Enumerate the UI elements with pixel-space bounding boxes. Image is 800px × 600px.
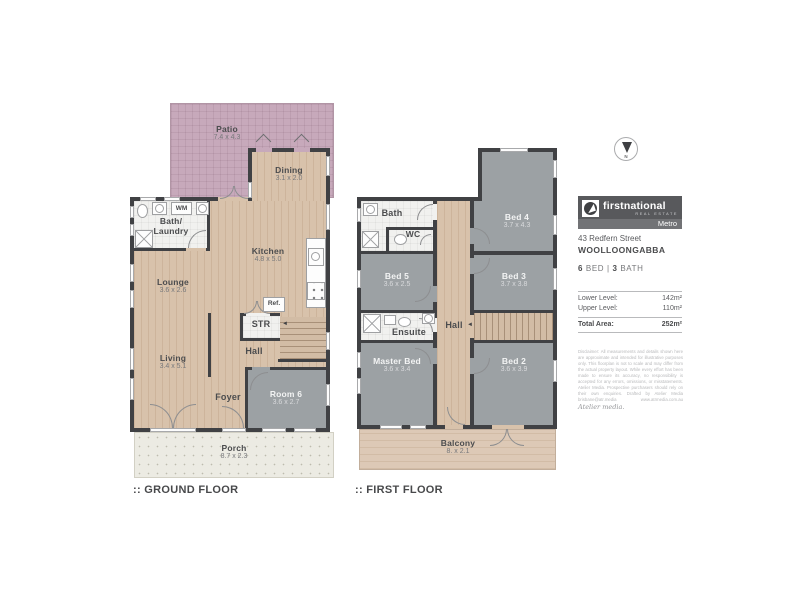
room-label-balcony: Balcony 8. x 2.1 (427, 438, 489, 457)
room-label-bed2: Bed 2 3.6 x 3.9 (482, 356, 546, 375)
area-label: Upper Level: (578, 305, 618, 312)
summary-divider: | (607, 264, 610, 273)
room-label-bed3: Bed 3 3.7 x 3.8 (482, 271, 546, 290)
window (553, 215, 557, 235)
area-row-total: Total Area: 252m² (578, 321, 682, 328)
room-dims: 8. x 2.1 (427, 448, 489, 457)
storage-label: STR (244, 319, 278, 330)
window (553, 360, 557, 382)
shower-icon (363, 314, 381, 333)
room-dims: 3.6 x 2.6 (143, 287, 203, 296)
room-name: Lounge (143, 277, 203, 287)
wall-segment (361, 251, 437, 254)
room-name: Laundry (136, 226, 206, 236)
room-dims: 4.8 x 5.0 (238, 256, 298, 265)
divider-line (578, 332, 682, 333)
room-name: Porch (202, 443, 266, 453)
bed4-area (482, 152, 553, 201)
room-label-room6: Room 6 3.6 x 2.7 (250, 389, 322, 408)
room-label-lounge: Lounge 3.6 x 2.6 (143, 277, 203, 296)
door-opening (252, 367, 270, 370)
area-value: 110m² (663, 305, 682, 312)
window (130, 206, 134, 218)
stair-direction-arrow: ◄ (282, 321, 288, 327)
window (130, 290, 134, 308)
room-label-bed5: Bed 5 3.6 x 2.5 (369, 271, 425, 290)
room-label-living: Living 3.4 x 5.1 (143, 353, 203, 372)
room-name: Living (143, 353, 203, 363)
window (357, 352, 361, 368)
room-label-dining: Dining 3.1 x 2.0 (261, 165, 317, 184)
window (553, 160, 557, 178)
wall-segment (208, 313, 211, 377)
area-row-upper: Upper Level: 110m² (578, 305, 682, 312)
room-name: Dining (261, 165, 317, 175)
room-name: Bed 3 (482, 271, 546, 281)
door-opening (186, 248, 206, 251)
window (553, 268, 557, 290)
area-value: 142m² (662, 295, 682, 302)
wc-label: WC (398, 229, 428, 239)
window (262, 428, 286, 432)
room-label-patio: Patio 7.4 x 4.3 (197, 124, 257, 143)
door-opening (433, 204, 437, 220)
address-line2: WOOLLOONGABBA (578, 245, 665, 255)
bath-label: Bath (374, 208, 410, 219)
room-dims: 8.7 x 2.3 (202, 453, 266, 462)
window (326, 332, 330, 350)
window (357, 270, 361, 288)
ground-floor-caption: :: GROUND FLOOR (133, 484, 238, 496)
room-name: Master Bed (363, 356, 431, 366)
baths-label: BATH (620, 264, 643, 273)
room-label-porch: Porch 8.7 x 2.3 (202, 443, 266, 462)
compass-needle-icon (622, 142, 632, 153)
sink-basin-icon (155, 204, 164, 213)
wall-segment (278, 359, 326, 362)
stove-icon (307, 282, 325, 300)
fridge-label: Ref. (263, 301, 285, 308)
door-opening (433, 286, 437, 302)
area-label: Lower Level: (578, 295, 618, 302)
room-name: Balcony (427, 438, 489, 448)
total-area-value: 252m² (662, 321, 682, 328)
room-name: Bed 4 (485, 212, 549, 222)
hall-floor-first (437, 201, 470, 425)
disclaimer-text: Disclaimer: All measurements and details… (578, 349, 683, 412)
window (326, 204, 330, 230)
room-dims: 3.4 x 5.1 (143, 363, 203, 372)
door-opening (150, 428, 196, 432)
ensuite-label: Ensuite (383, 327, 435, 338)
room-dims: 3.6 x 3.4 (363, 366, 431, 375)
room-dims: 3.1 x 2.0 (261, 175, 317, 184)
window (130, 264, 134, 282)
wall-segment (240, 338, 280, 341)
floorplan-page: WM Patio 7.4 x 4.3 Dining 3.1 x 2.0 Bath… (0, 0, 800, 600)
wall-segment (470, 340, 557, 343)
wall-segment (357, 197, 482, 201)
room-name: Bath/ (136, 216, 206, 226)
room-dims: 3.6 x 2.5 (369, 281, 425, 290)
bed-bath-summary: 6 BED | 3 BATH (578, 264, 644, 273)
shower-icon (362, 231, 379, 248)
washing-machine-label: WM (171, 206, 192, 213)
wall-segment (470, 251, 557, 255)
room-label-bath-laundry: Bath/ Laundry (136, 216, 206, 236)
window (248, 182, 252, 198)
divider-line (578, 291, 682, 292)
beds-label: BED (586, 264, 604, 273)
window (130, 378, 134, 400)
compass-north-label: N (615, 154, 637, 159)
door-opening (433, 348, 437, 364)
hall-label: Hall (236, 346, 272, 357)
window (357, 378, 361, 394)
beds-count: 6 (578, 264, 583, 273)
window (130, 224, 134, 236)
room-dims: 3.7 x 3.8 (482, 281, 546, 290)
total-area-label: Total Area: (578, 321, 614, 328)
room-dims: 3.6 x 3.9 (482, 366, 546, 375)
stair-direction-arrow: ◄ (467, 322, 473, 328)
sink-basin-icon (424, 314, 433, 323)
door-opening (445, 425, 463, 429)
wall-segment (357, 197, 361, 429)
wall-segment (361, 340, 437, 343)
room-dims: 7.4 x 4.3 (197, 134, 257, 143)
agency-logo: firstnational REAL ESTATE Metro (578, 196, 682, 229)
window (500, 148, 528, 152)
vanity-box (384, 315, 396, 325)
tub-basin-icon (198, 204, 207, 213)
window (326, 384, 330, 406)
area-row-lower: Lower Level: 142m² (578, 295, 682, 302)
room-name: Bed 2 (482, 356, 546, 366)
room-name: Bed 5 (369, 271, 425, 281)
room-dims: 3.7 x 4.3 (485, 222, 549, 231)
logo-arrow-icon (586, 204, 596, 213)
divider-line (578, 317, 682, 318)
window (140, 197, 156, 201)
brand-name: firstnational (603, 200, 681, 212)
logo-circle-icon (584, 202, 597, 215)
baths-count: 3 (612, 264, 617, 273)
room-label-bed4: Bed 4 3.7 x 4.3 (485, 212, 549, 231)
room-name: Room 6 (250, 389, 322, 399)
room-name: Kitchen (238, 246, 298, 256)
window (410, 425, 426, 429)
office-name: Metro (578, 219, 682, 229)
wall-segment (240, 313, 243, 341)
stairs-first (474, 313, 553, 340)
window (357, 208, 361, 222)
wall-segment (470, 310, 557, 313)
room-label-kitchen: Kitchen 4.8 x 5.0 (238, 246, 298, 265)
wall-segment (478, 148, 482, 201)
hall-label-first: Hall (440, 320, 468, 331)
first-floor-caption: :: FIRST FLOOR (355, 484, 443, 496)
compass-icon: N (614, 137, 638, 161)
room-label-master-bed: Master Bed 3.6 x 3.4 (363, 356, 431, 375)
toilet-icon (398, 317, 411, 327)
address-line1: 43 Redfern Street (578, 234, 641, 243)
logo-icon (582, 200, 599, 217)
window (326, 156, 330, 176)
room-name: Patio (197, 124, 257, 134)
wall-segment (386, 227, 389, 251)
foyer-label: Foyer (206, 392, 250, 403)
window (294, 428, 316, 432)
media-brand-wordmark: Atelier media. (578, 403, 624, 411)
disclaimer-body: Disclaimer: All measurements and details… (578, 349, 683, 402)
window (380, 425, 402, 429)
kitchen-sink-basin-icon (311, 252, 320, 261)
room-dims: 3.6 x 2.7 (250, 399, 322, 408)
brand-tagline: REAL ESTATE (606, 212, 678, 216)
door-opening (222, 428, 246, 432)
window (164, 197, 180, 201)
window (130, 348, 134, 370)
